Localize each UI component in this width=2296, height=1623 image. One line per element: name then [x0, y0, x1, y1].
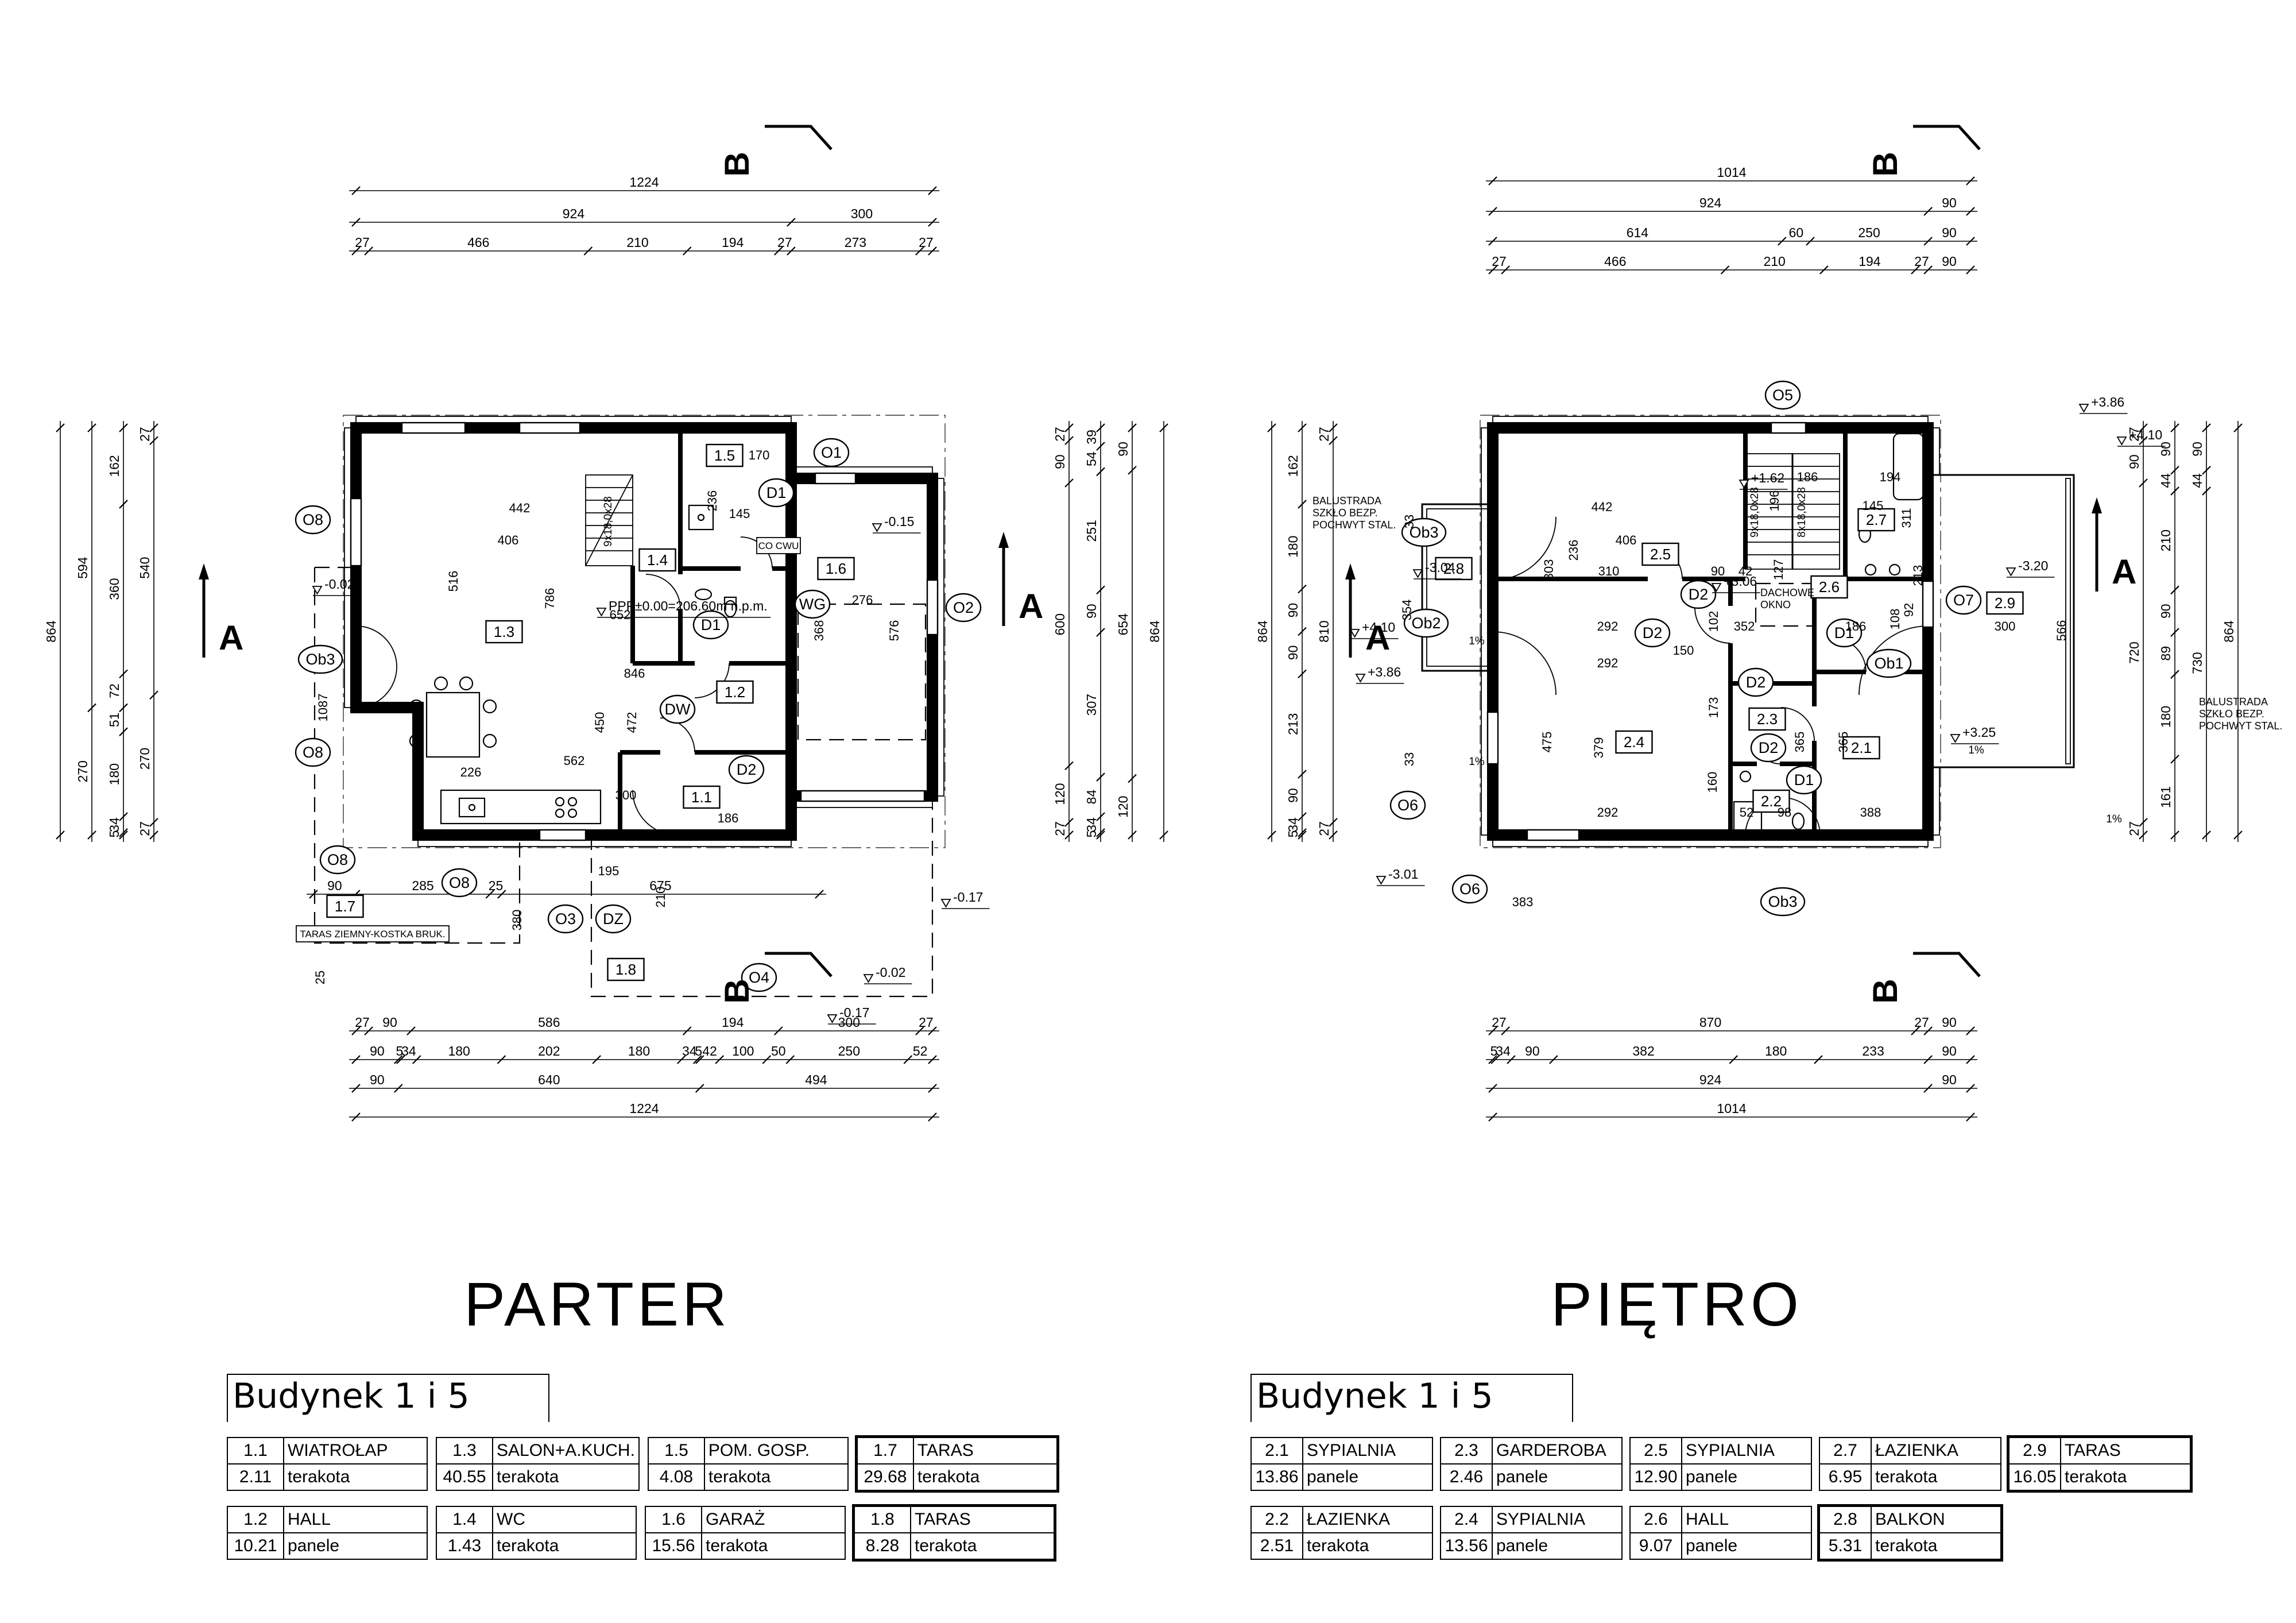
room-area: 4.08: [648, 1464, 704, 1490]
room-id: 2.1: [1251, 1437, 1303, 1464]
svg-text:2.4: 2.4: [1624, 733, 1644, 751]
svg-text:O8: O8: [327, 851, 348, 868]
dim-chain: 5349038218023390: [1486, 1044, 1977, 1064]
loose-dim: 8x18,0x28: [1796, 487, 1808, 538]
dim-value: 90: [1286, 603, 1300, 618]
room-id: 2.5: [1630, 1437, 1682, 1464]
opening-tag: D1: [694, 611, 728, 639]
dim-value: 90: [1525, 1044, 1540, 1058]
room-table-1.1: 1.1WIATROŁAP2.11terakota: [227, 1437, 428, 1491]
dim-value: 720: [2127, 642, 2142, 663]
loose-dim: 1087: [316, 694, 330, 722]
loose-dim: 475: [1540, 732, 1554, 753]
room-id: 2.9: [2009, 1437, 2061, 1464]
svg-text:1.4: 1.4: [647, 551, 668, 569]
floor-title-pietro: PIĘTRO: [1447, 1268, 1906, 1340]
dim-chain: 162180909021390345: [1286, 421, 1306, 842]
dim-chain: 1224: [349, 175, 939, 195]
svg-text:Ob3: Ob3: [1768, 893, 1797, 910]
dim-value: 44: [2190, 473, 2205, 488]
svg-text:1.8: 1.8: [615, 961, 636, 978]
svg-text:Ob3: Ob3: [305, 651, 335, 668]
room-id: 2.8: [1819, 1506, 1871, 1533]
room-name: SYPIALNIA: [1303, 1437, 1432, 1464]
room-name: ŁAZIENKA: [1303, 1506, 1432, 1533]
loose-dim: 127: [1771, 559, 1786, 581]
opening-tag: D2: [1635, 619, 1670, 647]
svg-text:OKNO: OKNO: [1760, 599, 1791, 610]
opening-tag: D2: [729, 756, 764, 783]
svg-text:O3: O3: [555, 910, 576, 928]
loose-dim: 300: [1995, 619, 2016, 633]
svg-text:D2: D2: [1746, 674, 1766, 691]
svg-text:1.3: 1.3: [494, 623, 514, 640]
dim-value: 180: [1286, 536, 1300, 558]
opening-tag: O7: [1946, 586, 1981, 614]
dim-value: 27: [1052, 821, 1067, 836]
dim-value: 27: [777, 235, 792, 250]
room-floor: terakota: [1303, 1533, 1432, 1559]
svg-text:O5: O5: [1772, 387, 1793, 404]
dim-chain: 90442109089180161: [2158, 421, 2179, 842]
room-floor: terakota: [911, 1533, 1054, 1559]
dim-value: 210: [626, 235, 648, 250]
loose-dim: 186: [1845, 619, 1867, 633]
loose-dim: 1%: [1968, 744, 1984, 756]
svg-text:+4.10: +4.10: [2129, 427, 2162, 442]
loose-dim: 194: [1880, 470, 1901, 484]
note-box: CO CWU: [757, 538, 800, 554]
loose-dim: 406: [1616, 533, 1637, 547]
room-table-2.2: 2.2ŁAZIENKA2.51terakota: [1250, 1506, 1433, 1560]
dim-value: 39: [1084, 430, 1099, 445]
room-id: 1.4: [436, 1506, 493, 1533]
dim-value: 5: [1084, 830, 1099, 838]
room-name: HALL: [284, 1506, 427, 1533]
room-name: SALON+A.KUCH.: [493, 1437, 639, 1464]
room-name: SYPIALNIA: [1682, 1437, 1811, 1464]
svg-text:O6: O6: [1397, 797, 1418, 814]
room-floor: panele: [1682, 1533, 1811, 1559]
loose-dim: 380: [510, 910, 524, 931]
dim-chain: 90654120: [1116, 421, 1136, 842]
dim-value: 52: [913, 1044, 928, 1058]
opening-tag: D2: [1751, 734, 1786, 762]
loose-dim: 516: [446, 571, 460, 592]
dim-value: 1014: [1717, 1101, 1746, 1116]
dim-value: 654: [1116, 613, 1130, 636]
room-table-2.1: 2.1SYPIALNIA13.86panele: [1250, 1437, 1433, 1491]
room-table-1.4: 1.4WC1.43terakota: [436, 1506, 637, 1560]
dim-value: 210: [1763, 254, 1785, 269]
room-area: 12.90: [1630, 1464, 1682, 1490]
dim-value: 730: [2190, 652, 2205, 674]
dim-value: 90: [2190, 442, 2205, 457]
svg-text:O8: O8: [303, 511, 323, 528]
legend-pietro: Budynek 1 i 52.1SYPIALNIA13.86panele2.3G…: [1250, 1374, 2198, 1560]
dim-value: 90: [327, 878, 342, 893]
dim-value: 25: [489, 878, 504, 893]
loose-dim: 576: [887, 620, 901, 642]
dim-chain: 864: [1147, 421, 1168, 842]
room-name: TARAS: [913, 1437, 1057, 1464]
dim-value: 307: [1084, 694, 1099, 716]
dim-chain: 2781027: [1317, 421, 1337, 842]
room-id: 1.6: [645, 1506, 702, 1533]
dim-chain: 864: [44, 421, 64, 842]
svg-text:+3.86: +3.86: [2091, 395, 2124, 409]
dim-chain: 864: [1255, 421, 1276, 842]
room-floor: terakota: [284, 1464, 427, 1490]
svg-text:-0.17: -0.17: [953, 890, 983, 905]
room-tag: 1.8: [608, 959, 644, 980]
parter-plan: [315, 415, 945, 996]
loose-dim: 368: [812, 620, 826, 642]
dim-chain: 279072027: [2127, 421, 2147, 842]
dim-value: 42: [702, 1044, 717, 1058]
loose-dim: 310: [1598, 564, 1620, 578]
room-area: 5.31: [1819, 1533, 1871, 1559]
loose-dim: 236: [705, 490, 719, 512]
room-name: HALL: [1682, 1506, 1811, 1533]
room-tag: 1.3: [486, 621, 522, 643]
svg-text:DACHOWE: DACHOWE: [1760, 587, 1814, 598]
opening-tag: D2: [1739, 668, 1773, 696]
dim-value: 180: [107, 763, 122, 785]
dim-value: 233: [1862, 1044, 1884, 1058]
dim-chain: 1623607251180345: [107, 421, 127, 842]
dim-chain: 1014: [1486, 1101, 1977, 1121]
opening-tag: DW: [660, 695, 695, 723]
room-table-2.6: 2.6HALL9.07panele: [1629, 1506, 1812, 1560]
svg-text:BALUSTRADA: BALUSTRADA: [1312, 495, 1381, 507]
dim-value: 34: [107, 817, 122, 832]
level-mark: +3.86: [2080, 395, 2128, 414]
room-table-1.2: 1.2HALL10.21panele: [227, 1506, 428, 1560]
dim-value: 90: [2158, 604, 2173, 619]
room-name: BALKON: [1871, 1506, 2001, 1533]
dim-value: 27: [355, 235, 370, 250]
room-name: TARAS: [911, 1506, 1054, 1533]
svg-text:+3.25: +3.25: [1962, 725, 1996, 740]
dim-value: 84: [1084, 790, 1099, 805]
dim-value: 5: [107, 830, 122, 838]
dim-value: 60: [1789, 225, 1804, 240]
room-tag: 1.4: [640, 549, 676, 571]
loose-dim: 292: [1597, 656, 1619, 670]
loose-dim: 173: [1706, 697, 1721, 718]
pietro-annotations: 1014924906146025090274662101942790278702…: [1255, 126, 2282, 1121]
loose-dim: 33: [1402, 515, 1416, 528]
loose-dim: 1%: [2106, 813, 2122, 825]
opening-tag: D1: [1787, 766, 1821, 794]
loose-dim: 566: [2054, 620, 2069, 642]
room-table-1.8: 1.8TARAS8.28terakota: [854, 1506, 1055, 1560]
section-mark: A: [2092, 497, 2136, 592]
dim-value: 54: [1084, 451, 1099, 466]
room-area: 16.05: [2009, 1464, 2061, 1490]
svg-text:A: A: [2112, 552, 2136, 591]
dim-value: 273: [845, 235, 866, 250]
loose-dim: 472: [625, 712, 639, 733]
dim-chain: 594270: [75, 421, 96, 842]
dim-chain: 924300: [349, 206, 939, 226]
svg-text:A: A: [219, 619, 243, 657]
loose-dim: 213: [1911, 565, 1925, 586]
loose-dim: 562: [564, 753, 585, 768]
room-id: 2.7: [1819, 1437, 1871, 1464]
level-mark: -0.02: [864, 965, 912, 984]
dim-value: 120: [1116, 796, 1130, 818]
dim-value: 34: [1496, 1044, 1511, 1058]
dim-value: 90: [1942, 225, 1957, 240]
loose-dim: 303: [1542, 559, 1556, 581]
loose-dim: 210: [653, 887, 668, 908]
section-mark: B: [718, 126, 831, 177]
svg-text:+3.86: +3.86: [1368, 664, 1401, 679]
dim-chain: 92490: [1486, 195, 1977, 215]
kitchen-fixtures: [410, 677, 601, 824]
opening-tag: O6: [1453, 875, 1487, 903]
loose-dim: 1%: [1469, 635, 1485, 647]
dim-value: 586: [538, 1015, 560, 1030]
dim-value: 90: [370, 1072, 385, 1087]
dim-value: 864: [44, 620, 59, 643]
room-id: 1.8: [854, 1506, 911, 1533]
dim-value: 90: [1942, 1044, 1957, 1058]
level-mark: -3.01: [1377, 867, 1425, 886]
dim-chain: 2754027027: [137, 421, 158, 842]
svg-text:D2: D2: [737, 761, 757, 778]
svg-text:A: A: [1365, 619, 1390, 657]
dim-value: 360: [107, 578, 122, 600]
loose-dim: 196: [1767, 490, 1782, 512]
svg-text:O2: O2: [953, 599, 974, 616]
loose-dim: 379: [1592, 737, 1606, 759]
legend-heading: Budynek 1 i 5: [227, 1374, 549, 1422]
dim-chain: 90534180202180345421005025052: [349, 1044, 939, 1064]
room-id: 1.5: [648, 1437, 704, 1464]
room-table-1.7: 1.7TARAS29.68terakota: [857, 1437, 1058, 1491]
loose-dim: 365: [1836, 732, 1850, 753]
svg-text:B: B: [718, 152, 756, 176]
dim-value: 870: [1699, 1015, 1721, 1030]
room-table-2.7: 2.7ŁAZIENKA6.95terakota: [1819, 1437, 2001, 1491]
floor-title-parter: PARTER: [367, 1268, 827, 1340]
dim-value: 924: [1699, 1072, 1722, 1087]
dim-chain: 90640494: [349, 1072, 939, 1092]
dim-value: 72: [107, 683, 122, 698]
level-mark: -3.20: [2007, 558, 2055, 577]
svg-text:2.6: 2.6: [1819, 578, 1840, 596]
dim-value: 27: [1317, 427, 1331, 442]
svg-text:DZ: DZ: [603, 910, 624, 928]
room-area: 1.43: [436, 1533, 493, 1559]
dim-value: 202: [538, 1044, 560, 1058]
loose-dim: 9x18,0x28: [1749, 487, 1761, 538]
dim-value: 90: [1286, 646, 1300, 660]
note-text: BALUSTRADASZKŁO BEZP.POCHWYT STAL.: [1312, 495, 1396, 531]
dim-value: 864: [1147, 620, 1162, 643]
svg-text:-0.02: -0.02: [324, 577, 354, 592]
room-floor: panele: [1492, 1533, 1622, 1559]
room-area: 9.07: [1630, 1533, 1682, 1559]
dim-value: 90: [1942, 195, 1957, 210]
dim-value: 640: [538, 1072, 560, 1087]
level-mark: +3.25: [1951, 725, 1999, 744]
room-name: WIATROŁAP: [284, 1437, 427, 1464]
dim-chain: 1224: [349, 1101, 939, 1121]
room-area: 10.21: [227, 1533, 284, 1559]
loose-dim: 450: [593, 712, 607, 733]
room-tag: 2.4: [1616, 731, 1652, 753]
room-table-2.3: 2.3GARDEROBA2.46panele: [1440, 1437, 1623, 1491]
room-floor: panele: [1303, 1464, 1432, 1490]
windows: [351, 423, 938, 840]
room-tag: 2.3: [1749, 708, 1786, 730]
level-mark: +3.86: [1356, 664, 1404, 683]
dim-value: 161: [2158, 786, 2173, 808]
room-floor: terakota: [913, 1464, 1057, 1490]
opening-tag: O5: [1765, 381, 1800, 409]
dim-value: 180: [1765, 1044, 1787, 1058]
opening-tag: O6: [1391, 791, 1425, 819]
loose-dim: 442: [1592, 500, 1613, 514]
loose-dim: 786: [543, 588, 557, 609]
dim-value: 90: [382, 1015, 397, 1030]
loose-dim: 236: [1566, 540, 1581, 561]
dim-value: 5: [1286, 830, 1300, 838]
room-id: 1.1: [227, 1437, 284, 1464]
dim-value: 251: [1084, 520, 1099, 542]
dim-value: 27: [2127, 821, 2142, 836]
loose-dim: 406: [498, 533, 519, 547]
room-floor: terakota: [493, 1464, 639, 1490]
opening-tag: Ob3: [1761, 888, 1805, 915]
svg-text:POCHWYT STAL.: POCHWYT STAL.: [2199, 720, 2282, 732]
dining-table: [427, 693, 479, 757]
room-name: GARAŻ: [702, 1506, 845, 1533]
room-floor: terakota: [1871, 1464, 2001, 1490]
opening-tag: O8: [296, 506, 330, 534]
dim-value: 89: [2158, 646, 2173, 661]
svg-text:-3.04: -3.04: [1425, 560, 1455, 575]
section-mark: A: [998, 532, 1043, 626]
room-area: 40.55: [436, 1464, 493, 1490]
dim-value: 382: [1632, 1044, 1654, 1058]
svg-text:2.3: 2.3: [1757, 710, 1778, 728]
dim-value: 90: [1052, 454, 1067, 469]
svg-text:D2: D2: [1643, 624, 1663, 642]
dim-value: 100: [732, 1044, 754, 1058]
loose-dim: 195: [598, 864, 620, 878]
svg-text:TARAS ZIEMNY-KOSTKA BRUK.: TARAS ZIEMNY-KOSTKA BRUK.: [300, 929, 445, 940]
dim-value: 270: [75, 760, 90, 782]
room-area: 6.95: [1819, 1464, 1871, 1490]
loose-dim: 90: [1711, 564, 1725, 578]
loose-dim: 25: [313, 971, 327, 984]
dim-value: 810: [1317, 620, 1331, 642]
note-text: DACHOWEOKNO: [1760, 587, 1814, 610]
loose-dim: 52: [1740, 805, 1753, 820]
loose-dim: 186: [718, 811, 739, 825]
svg-text:2.1: 2.1: [1851, 739, 1872, 756]
svg-text:B: B: [1866, 979, 1904, 1003]
dim-value: 90: [2158, 442, 2173, 457]
legend-row: 2.1SYPIALNIA13.86panele2.3GARDEROBA2.46p…: [1250, 1437, 2198, 1491]
room-tag: 1.6: [818, 558, 854, 579]
level-mark: -0.15: [873, 514, 921, 533]
dim-value: 594: [75, 557, 90, 579]
dim-value: 180: [448, 1044, 470, 1058]
room-table-2.8: 2.8BALKON5.31terakota: [1819, 1506, 2001, 1560]
dim-chain: 92490: [1486, 1072, 1977, 1092]
room-tag: 2.9: [1987, 592, 2023, 614]
dim-value: 600: [1052, 613, 1067, 635]
dim-value: 5: [695, 1044, 702, 1058]
opening-tag: O1: [814, 439, 849, 466]
loose-dim: 150: [1673, 643, 1694, 658]
dim-value: 27: [919, 1015, 934, 1030]
svg-text:D1: D1: [766, 484, 787, 501]
svg-text:-0.15: -0.15: [884, 514, 914, 529]
svg-text:+1.62: +1.62: [1751, 470, 1784, 485]
room-floor: terakota: [704, 1464, 848, 1490]
dim-value: 924: [1699, 195, 1722, 210]
loose-dim: 145: [1863, 499, 1884, 513]
opening-tag: WG: [795, 590, 830, 618]
dim-value: 27: [1914, 254, 1929, 269]
loose-dim: 652: [610, 608, 631, 622]
dim-value: 27: [355, 1015, 370, 1030]
svg-text:Ob1: Ob1: [1874, 655, 1903, 672]
room-name: SYPIALNIA: [1492, 1506, 1622, 1533]
dim-value: 1224: [629, 1101, 659, 1116]
section-mark: B: [1866, 126, 1980, 177]
loose-dim: 292: [1597, 805, 1619, 820]
legend-row: 2.2ŁAZIENKA2.51terakota2.4SYPIALNIA13.56…: [1250, 1506, 2198, 1560]
loose-dim: 388: [1860, 805, 1881, 820]
dim-value: 180: [2158, 706, 2173, 728]
room-table-1.5: 1.5POM. GOSP.4.08terakota: [648, 1437, 849, 1491]
room-tag: 2.6: [1811, 576, 1848, 598]
room-table-2.5: 2.5SYPIALNIA12.90panele: [1629, 1437, 1812, 1491]
room-area: 15.56: [645, 1533, 702, 1559]
room-tag: 1.1: [684, 786, 720, 808]
dim-value: 466: [467, 235, 489, 250]
svg-text:D1: D1: [1794, 771, 1814, 789]
legend-row: 1.2HALL10.21panele1.4WC1.43terakota1.6GA…: [227, 1506, 1066, 1560]
dim-value: 540: [137, 557, 152, 579]
svg-text:D2: D2: [1689, 586, 1709, 603]
dim-value: 27: [1317, 821, 1331, 836]
dim-chain: 9028525675: [307, 878, 826, 898]
svg-text:O6: O6: [1459, 880, 1480, 898]
note-text: BALUSTRADASZKŁO BEZP.POCHWYT STAL.: [2199, 696, 2282, 732]
dim-value: 90: [2127, 454, 2142, 469]
room-id: 2.3: [1441, 1437, 1492, 1464]
dim-value: 270: [137, 748, 152, 770]
room-id: 1.2: [227, 1506, 284, 1533]
room-area: 8.28: [854, 1533, 911, 1559]
svg-text:B: B: [1866, 152, 1904, 176]
dim-chain: 864: [2221, 421, 2242, 842]
svg-text:CO CWU: CO CWU: [758, 540, 799, 551]
dim-value: 1014: [1717, 165, 1746, 180]
room-name: GARDEROBA: [1492, 1437, 1622, 1464]
loose-dim: 160: [1705, 772, 1720, 793]
svg-text:2.5: 2.5: [1650, 546, 1671, 563]
